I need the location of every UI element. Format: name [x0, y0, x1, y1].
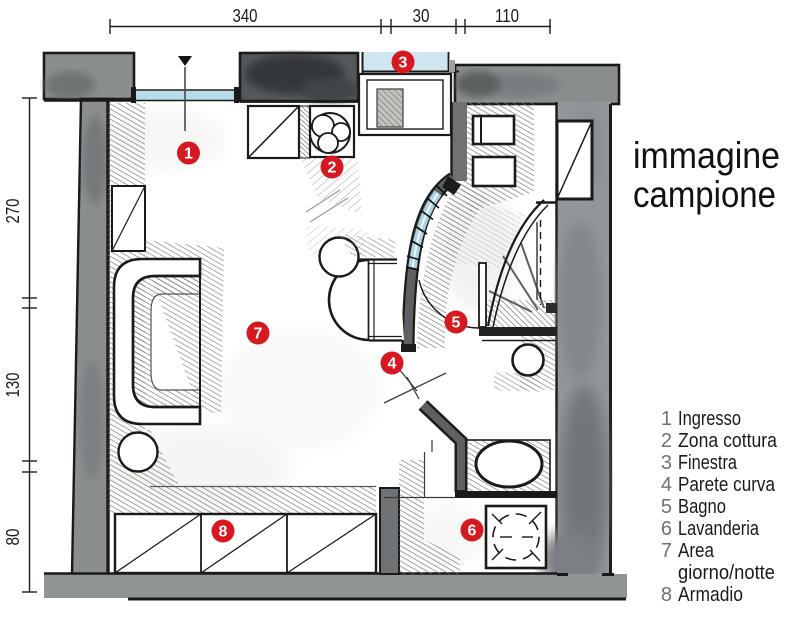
svg-text:4: 4	[388, 356, 397, 373]
svg-text:Armadio: Armadio	[678, 584, 743, 606]
svg-text:2: 2	[328, 160, 337, 177]
svg-text:6: 6	[468, 523, 477, 540]
svg-text:2: 2	[661, 430, 672, 452]
svg-text:110: 110	[495, 6, 519, 26]
svg-text:7: 7	[254, 326, 263, 343]
svg-text:5: 5	[452, 315, 461, 332]
svg-text:270: 270	[3, 199, 23, 224]
svg-text:Ingresso: Ingresso	[678, 408, 741, 430]
svg-text:130: 130	[3, 373, 23, 398]
svg-text:Zona cottura: Zona cottura	[678, 430, 778, 452]
svg-text:campione: campione	[633, 174, 776, 215]
svg-text:Finestra: Finestra	[678, 452, 738, 474]
svg-text:8: 8	[661, 584, 672, 606]
svg-text:Parete curva: Parete curva	[678, 474, 776, 496]
svg-text:30: 30	[413, 6, 430, 26]
svg-text:immagine: immagine	[633, 135, 780, 176]
svg-text:8: 8	[219, 524, 228, 541]
svg-text:3: 3	[399, 55, 408, 72]
svg-text:giorno/notte: giorno/notte	[678, 562, 775, 584]
svg-text:1: 1	[661, 408, 672, 430]
svg-text:Lavanderia: Lavanderia	[678, 518, 760, 540]
svg-text:1: 1	[184, 146, 193, 163]
svg-text:340: 340	[233, 6, 258, 26]
svg-text:3: 3	[661, 452, 672, 474]
svg-text:6: 6	[661, 518, 672, 540]
svg-text:80: 80	[3, 529, 23, 546]
svg-text:Area: Area	[678, 540, 715, 562]
svg-text:7: 7	[661, 540, 672, 562]
svg-text:Bagno: Bagno	[678, 496, 726, 518]
svg-text:4: 4	[661, 474, 672, 496]
svg-text:5: 5	[661, 496, 672, 518]
